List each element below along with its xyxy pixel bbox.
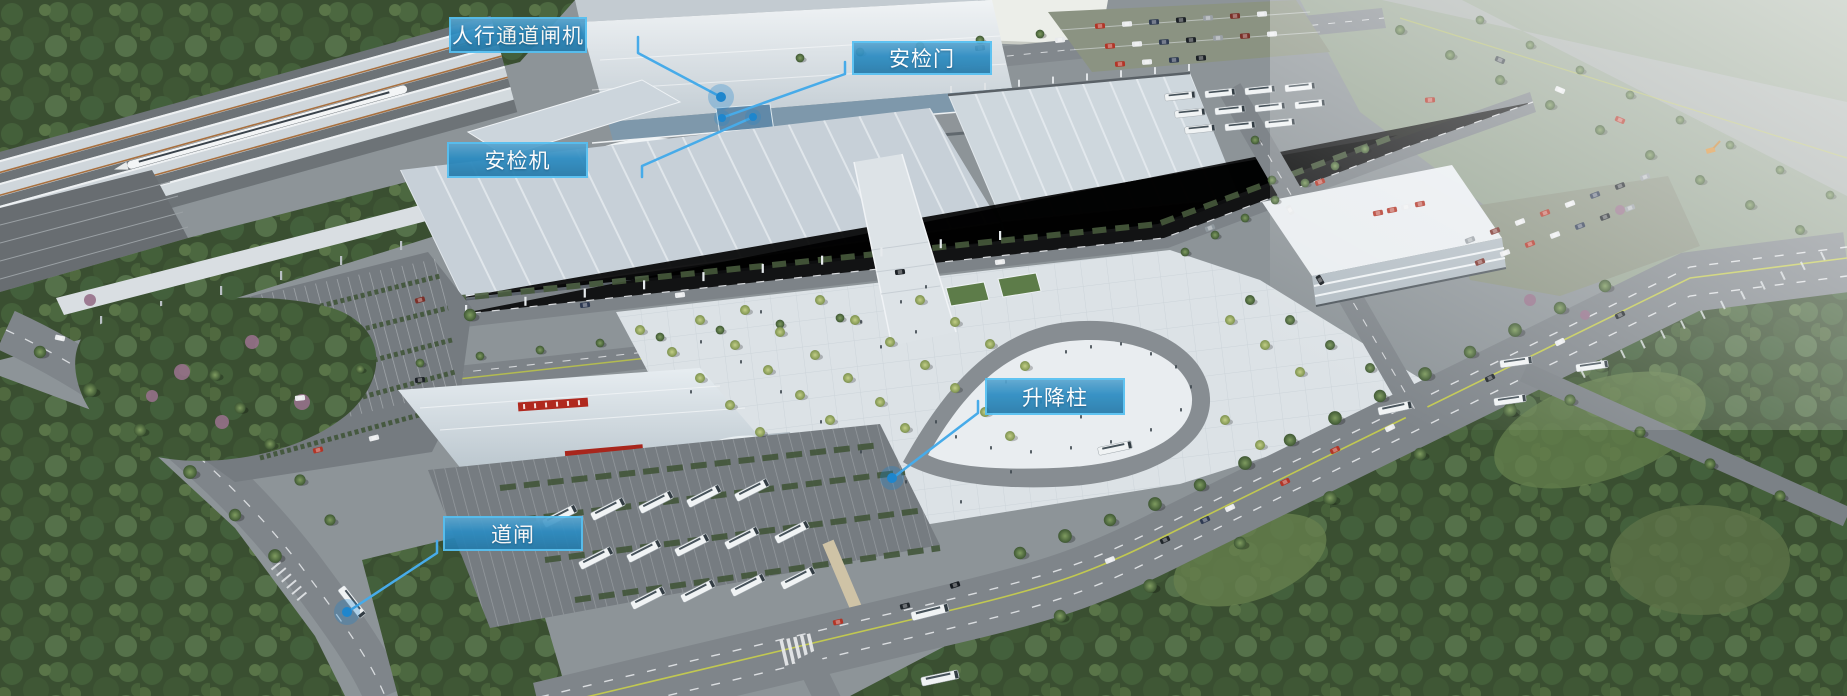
aerial-station-rendering: 人行通道闸机 安检门 安检机 升降柱 道闸: [0, 0, 1847, 696]
marker-security-door: [718, 114, 726, 122]
marker-bollard: [887, 473, 897, 483]
label-barrier-gate-text: 道闸: [491, 519, 535, 549]
leader-security-door: [724, 62, 845, 117]
label-barrier-gate: 道闸: [443, 516, 583, 551]
leader-barrier-gate: [349, 541, 437, 611]
label-security-scanner-text: 安检机: [485, 145, 551, 175]
label-bollard: 升降柱: [985, 378, 1125, 415]
label-pedestrian-gate-text: 人行通道闸机: [452, 20, 584, 50]
marker-pedestrian-gate: [716, 92, 726, 102]
label-security-door-text: 安检门: [889, 43, 955, 73]
marker-security-scanner: [749, 113, 757, 121]
label-security-door: 安检门: [852, 41, 992, 75]
leader-security-scanner: [642, 118, 751, 177]
leader-bollard: [894, 401, 978, 477]
marker-barrier-gate: [342, 607, 352, 617]
leader-pedestrian-gate: [638, 37, 719, 96]
label-security-scanner: 安检机: [447, 142, 588, 178]
label-bollard-text: 升降柱: [1022, 382, 1088, 412]
annotation-layer: 人行通道闸机 安检门 安检机 升降柱 道闸: [0, 0, 1847, 696]
leader-lines: [0, 0, 1847, 696]
label-pedestrian-gate: 人行通道闸机: [449, 17, 587, 53]
